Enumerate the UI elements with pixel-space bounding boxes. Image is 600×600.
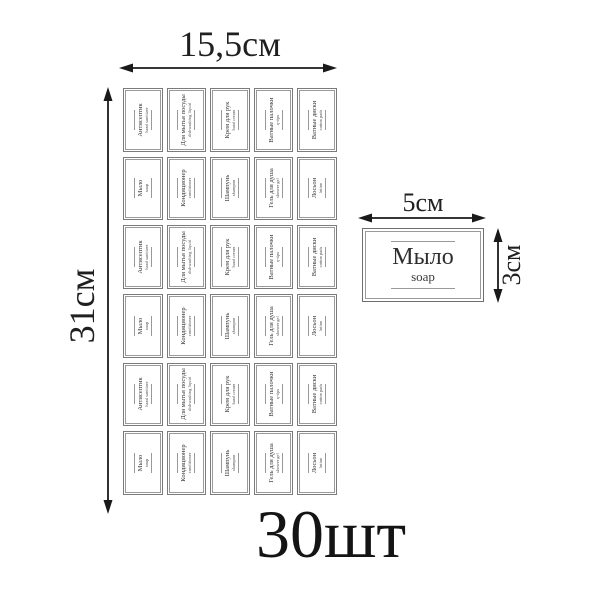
sheet-label-cell: Гель для душа shower gel [254, 294, 294, 358]
decor-line-top [221, 178, 222, 198]
sheet-label-cell: Шампунь shampoo [210, 431, 250, 495]
decor-line-top [221, 384, 222, 404]
sheet-label-cell: Ватные палочки q-tips [254, 225, 294, 289]
decor-line-top [308, 316, 309, 336]
label-main-text: Мыло [136, 180, 143, 197]
rotated-label-content: Мыло soap [128, 298, 158, 354]
sample-width-dimension: 5см [362, 190, 484, 216]
sheet-label-frame: Мыло soap [125, 433, 161, 493]
decor-line-top [134, 384, 135, 404]
decor-line-bottom [194, 247, 195, 267]
sheet-label-cell: Для мытья посуды dishwashing liquid [167, 225, 207, 289]
decor-line-bottom [325, 110, 326, 130]
decor-line-bottom [282, 247, 283, 267]
label-sub-text: cotton pads [318, 110, 323, 131]
rotated-label-content: Ватные палочки q-tips [259, 229, 289, 285]
rotated-label-content: Для мытья посуды dishwashing liquid [171, 229, 201, 285]
rotated-label-content: Крем для рук hand cream [215, 229, 245, 285]
label-sub-text: dishwashing liquid [187, 240, 192, 274]
rotated-label-content: Ватные диски cotton pads [302, 366, 332, 422]
label-sub-text: lotion [318, 458, 323, 469]
decor-line-top [308, 110, 309, 130]
sheet-width-dimension: 15,5см [123, 26, 337, 62]
decor-line-top [134, 110, 135, 130]
sheet-label-cell: Лосьон lotion [297, 431, 337, 495]
decor-line-bottom [325, 316, 326, 336]
sheet-label-cell: Гель для душа shower gel [254, 157, 294, 221]
sheet-label-cell: Крем для рук hand cream [210, 225, 250, 289]
label-main-text: Антисептик [136, 378, 143, 411]
sheet-label-frame: Ватные палочки q-tips [256, 365, 292, 425]
label-sub-text: dishwashing liquid [187, 103, 192, 137]
label-sub-text: shower gel [275, 453, 280, 473]
decor-line-bottom [238, 453, 239, 473]
label-sub-text: q-tips [275, 252, 280, 262]
rotated-label-content: Гель для душа shower gel [259, 160, 289, 216]
rotated-label-content: Шампунь shampoo [215, 160, 245, 216]
sheet-label-frame: Кондиционер conditioner [169, 296, 205, 356]
label-main-text: Крем для рук [224, 101, 231, 138]
sheet-label-cell: Кондиционер conditioner [167, 294, 207, 358]
sheet-label-cell: Антисептик hand sanitizer [123, 225, 163, 289]
decor-line-top [265, 110, 266, 130]
label-sub-text: shampoo [231, 455, 236, 471]
sheet-label-cell: Кондиционер conditioner [167, 157, 207, 221]
sheet-label-cell: Мыло soap [123, 431, 163, 495]
label-sub-text: hand sanitizer [144, 382, 149, 407]
decor-line-top [221, 247, 222, 267]
decor-line-top [177, 247, 178, 267]
decor-line-top [177, 316, 178, 336]
label-sub-text: shampoo [231, 180, 236, 196]
sheet-label-frame: Крем для рук hand cream [212, 227, 248, 287]
sheet-label-frame: Антисептик hand sanitizer [125, 90, 161, 150]
sheet-label-frame: Лосьон lotion [299, 433, 335, 493]
rotated-label-content: Гель для душа shower gel [259, 435, 289, 491]
rotated-label-content: Ватные палочки q-tips [259, 92, 289, 148]
label-sub-text: cotton pads [318, 247, 323, 268]
sheet-label-cell: Крем для рук hand cream [210, 88, 250, 152]
sheet-label-cell: Ватные палочки q-tips [254, 363, 294, 427]
label-sub-text: conditioner [187, 316, 192, 337]
rotated-label-content: Гель для душа shower gel [259, 298, 289, 354]
decor-line-top [177, 384, 178, 404]
sheet-label-frame: Крем для рук hand cream [212, 365, 248, 425]
decor-line-top [265, 453, 266, 473]
decor-line-bottom [282, 316, 283, 336]
sheet-label-cell: Мыло soap [123, 157, 163, 221]
sheet-label-cell: Шампунь shampoo [210, 157, 250, 221]
label-main-text: Мыло [136, 455, 143, 472]
sample-label-frame: Мыло soap [365, 231, 481, 299]
count-label: 30шт [225, 500, 437, 568]
label-main-text: Крем для рук [224, 239, 231, 276]
sheet-label-frame: Антисептик hand sanitizer [125, 365, 161, 425]
sheet-label-frame: Мыло soap [125, 296, 161, 356]
sheet-label-frame: Кондиционер conditioner [169, 433, 205, 493]
sheet-label-frame: Для мытья посуды dishwashing liquid [169, 227, 205, 287]
sheet-label-frame: Ватные диски cotton pads [299, 227, 335, 287]
label-main-text: Крем для рук [224, 376, 231, 413]
decor-line-bottom [238, 247, 239, 267]
decor-line-top [265, 247, 266, 267]
sample-height-dimension: 3см [499, 225, 529, 305]
sheet-label-cell: Лосьон lotion [297, 157, 337, 221]
label-main-text: Ватные палочки [267, 372, 274, 417]
label-sub-text: shampoo [231, 318, 236, 334]
label-sheet-diagram: 15,5см 31см Антисептик hand sanitizer Дл… [0, 0, 600, 600]
sheet-label-frame: Шампунь shampoo [212, 433, 248, 493]
decor-line-bottom [391, 288, 455, 289]
sheet-label-cell: Ватные диски cotton pads [297, 225, 337, 289]
sheet-label-cell: Мыло soap [123, 294, 163, 358]
label-main-text: Гель для душа [267, 306, 274, 346]
rotated-label-content: Ватные диски cotton pads [302, 229, 332, 285]
sample-label-main-text: Мыло [392, 245, 453, 270]
sheet-label-frame: Для мытья посуды dishwashing liquid [169, 365, 205, 425]
sheet-label-cell: Ватные палочки q-tips [254, 88, 294, 152]
label-sub-text: shower gel [275, 179, 280, 199]
decor-line-top [265, 178, 266, 198]
sheet-label-frame: Кондиционер conditioner [169, 159, 205, 219]
decor-line-bottom [325, 178, 326, 198]
sheet-label-frame: Гель для душа shower gel [256, 296, 292, 356]
label-sub-text: soap [144, 184, 149, 192]
decor-line-top [221, 453, 222, 473]
label-sub-text: hand sanitizer [144, 107, 149, 132]
decor-line-bottom [194, 453, 195, 473]
sheet-label-cell: Антисептик hand sanitizer [123, 363, 163, 427]
decor-line-top [134, 316, 135, 336]
label-main-text: Гель для душа [267, 443, 274, 483]
sheet-label-frame: Антисептик hand sanitizer [125, 227, 161, 287]
label-main-text: Антисептик [136, 241, 143, 274]
rotated-label-content: Для мытья посуды dishwashing liquid [171, 366, 201, 422]
sheet-label-cell: Ватные диски cotton pads [297, 88, 337, 152]
rotated-label-content: Шампунь shampoo [215, 298, 245, 354]
sheet-label-cell: Кондиционер conditioner [167, 431, 207, 495]
sheet-label-frame: Ватные диски cotton pads [299, 365, 335, 425]
sheet-label-frame: Шампунь shampoo [212, 296, 248, 356]
sheet-label-frame: Шампунь shampoo [212, 159, 248, 219]
decor-line-bottom [151, 178, 152, 198]
sheet-label-cell: Для мытья посуды dishwashing liquid [167, 363, 207, 427]
sheet-label-cell: Гель для душа shower gel [254, 431, 294, 495]
decor-line-bottom [151, 316, 152, 336]
label-sub-text: hand cream [231, 247, 236, 268]
decor-line-bottom [325, 453, 326, 473]
sheet-width-arrow [119, 64, 337, 73]
rotated-label-content: Лосьон lotion [302, 435, 332, 491]
decor-line-bottom [325, 247, 326, 267]
label-main-text: Ватные палочки [267, 235, 274, 280]
decor-line-bottom [238, 384, 239, 404]
decor-line-top [134, 453, 135, 473]
label-main-text: Мыло [136, 318, 143, 335]
label-main-text: Ватные палочки [267, 97, 274, 142]
rotated-label-content: Мыло soap [128, 160, 158, 216]
label-sub-text: lotion [318, 321, 323, 332]
decor-line-top [308, 384, 309, 404]
decor-line-top [308, 178, 309, 198]
rotated-label-content: Крем для рук hand cream [215, 92, 245, 148]
label-sub-text: soap [144, 459, 149, 467]
label-main-text: Гель для душа [267, 169, 274, 209]
label-sub-text: shower gel [275, 316, 280, 336]
sheet-height-arrow [104, 87, 113, 514]
decor-line-top [177, 110, 178, 130]
sheet-label-frame: Мыло soap [125, 159, 161, 219]
sample-label: Мыло soap [362, 228, 484, 302]
sheet-label-cell: Ватные диски cotton pads [297, 363, 337, 427]
sheet-height-dimension: 31см [64, 236, 104, 376]
decor-line-bottom [325, 384, 326, 404]
label-sub-text: soap [144, 322, 149, 330]
decor-line-bottom [238, 178, 239, 198]
rotated-label-content: Ватные палочки q-tips [259, 366, 289, 422]
decor-line-top [308, 453, 309, 473]
sheet-label-cell: Крем для рук hand cream [210, 363, 250, 427]
label-sub-text: hand cream [231, 109, 236, 130]
decor-line-top [134, 247, 135, 267]
rotated-label-content: Шампунь shampoo [215, 435, 245, 491]
label-main-text: Антисептик [136, 103, 143, 136]
decor-line-bottom [194, 110, 195, 130]
decor-line-bottom [238, 110, 239, 130]
decor-line-top [221, 110, 222, 130]
sheet-label-frame: Для мытья посуды dishwashing liquid [169, 90, 205, 150]
sample-label-sub-text: soap [411, 270, 435, 285]
sheet-label-frame: Гель для душа shower gel [256, 159, 292, 219]
decor-line-bottom [194, 316, 195, 336]
sheet-label-frame: Лосьон lotion [299, 159, 335, 219]
label-sub-text: dishwashing liquid [187, 377, 192, 411]
rotated-label-content: Антисептик hand sanitizer [128, 229, 158, 285]
decor-line-top [134, 178, 135, 198]
decor-line-bottom [151, 453, 152, 473]
label-main-text: Шампунь [224, 175, 231, 202]
label-sub-text: cotton pads [318, 384, 323, 405]
label-sub-text: hand cream [231, 384, 236, 405]
label-sub-text: conditioner [187, 453, 192, 474]
sheet-label-frame: Ватные палочки q-tips [256, 90, 292, 150]
rotated-label-content: Для мытья посуды dishwashing liquid [171, 92, 201, 148]
rotated-label-content: Антисептик hand sanitizer [128, 92, 158, 148]
decor-line-top [177, 178, 178, 198]
rotated-label-content: Антисептик hand sanitizer [128, 366, 158, 422]
rotated-label-content: Лосьон lotion [302, 160, 332, 216]
sheet-label-cell: Лосьон lotion [297, 294, 337, 358]
decor-line-top [391, 241, 455, 242]
label-sub-text: q-tips [275, 389, 280, 399]
rotated-label-content: Крем для рук hand cream [215, 366, 245, 422]
sheet-label-frame: Лосьон lotion [299, 296, 335, 356]
decor-line-bottom [151, 384, 152, 404]
rotated-label-content: Кондиционер conditioner [171, 160, 201, 216]
sheet-label-frame: Ватные диски cotton pads [299, 90, 335, 150]
label-sheet-grid: Антисептик hand sanitizer Для мытья посу… [123, 88, 337, 495]
sheet-label-frame: Гель для душа shower gel [256, 433, 292, 493]
decor-line-top [221, 316, 222, 336]
decor-line-bottom [194, 178, 195, 198]
rotated-label-content: Кондиционер conditioner [171, 298, 201, 354]
rotated-label-content: Мыло soap [128, 435, 158, 491]
rotated-label-content: Лосьон lotion [302, 298, 332, 354]
decor-line-bottom [238, 316, 239, 336]
label-sub-text: lotion [318, 183, 323, 194]
label-main-text: Шампунь [224, 312, 231, 339]
label-sub-text: conditioner [187, 178, 192, 199]
decor-line-top [177, 453, 178, 473]
decor-line-bottom [282, 453, 283, 473]
sheet-label-frame: Ватные палочки q-tips [256, 227, 292, 287]
label-sub-text: q-tips [275, 115, 280, 125]
decor-line-bottom [282, 110, 283, 130]
sheet-label-cell: Для мытья посуды dishwashing liquid [167, 88, 207, 152]
sheet-label-cell: Антисептик hand sanitizer [123, 88, 163, 152]
sheet-label-frame: Крем для рук hand cream [212, 90, 248, 150]
decor-line-bottom [282, 384, 283, 404]
label-sub-text: hand sanitizer [144, 245, 149, 270]
decor-line-bottom [194, 384, 195, 404]
rotated-label-content: Ватные диски cotton pads [302, 92, 332, 148]
decor-line-bottom [282, 178, 283, 198]
decor-line-bottom [151, 110, 152, 130]
decor-line-bottom [151, 247, 152, 267]
rotated-label-content: Кондиционер conditioner [171, 435, 201, 491]
decor-line-top [308, 247, 309, 267]
sheet-label-cell: Шампунь shampoo [210, 294, 250, 358]
label-main-text: Шампунь [224, 450, 231, 477]
decor-line-top [265, 316, 266, 336]
decor-line-top [265, 384, 266, 404]
